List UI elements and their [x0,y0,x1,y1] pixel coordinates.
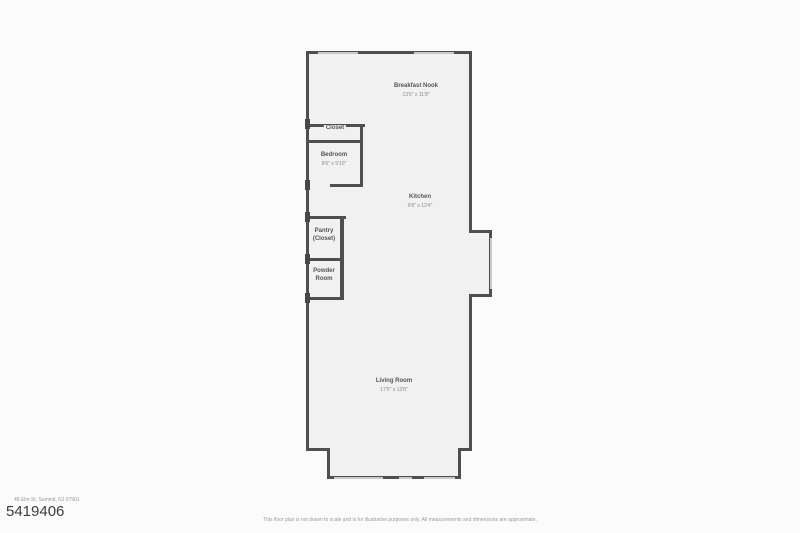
wall-closet-bottom [308,140,363,143]
label-pantry-line2: (Closet) [313,236,335,243]
label-breakfast-nook: Breakfast Nook [394,83,438,90]
dims-living-room: 17'6" x 13'8" [380,387,407,393]
floor-plan-page: Breakfast Nook 13'6" x 11'8" Closet Bedr… [0,0,800,533]
dims-kitchen: 9'8" x 13'4" [408,203,433,209]
label-closet: Closet [324,125,346,132]
window-bay [490,238,492,289]
label-powder-line1: Powder [313,268,335,275]
wall-left-step-v [327,448,330,479]
wall-bedroom-bottom [330,184,363,187]
wall-junction-nub [305,254,310,264]
wall-junction-nub [305,293,310,303]
wall-bedroom-right [360,124,363,187]
wall-junction-nub [305,180,310,190]
window-top-right [414,52,454,54]
wall-right-upper [469,51,472,233]
mls-number: 5419406 [6,503,64,520]
window-bottom-right [424,477,455,479]
floor-bottom-section [328,448,459,478]
dims-breakfast-nook: 13'6" x 11'8" [402,92,429,98]
wall-powder-bottom [308,297,344,300]
floor-bay-bump [470,231,491,297]
label-kitchen: Kitchen [409,194,431,201]
disclaimer-text: This floor plan is not drawn to scale an… [263,517,537,523]
label-bedroom: Bedroom [321,152,347,159]
wall-right-lower [469,295,472,451]
window-bottom-mid [399,477,412,479]
window-bottom-left [334,477,383,479]
wall-junction-nub [305,212,310,222]
label-pantry-line1: Pantry [315,228,334,235]
dims-bedroom: 8'6" x 9'10" [322,161,347,167]
wall-right-step-v [458,448,461,479]
window-top-left [318,52,358,54]
label-living-room: Living Room [376,378,412,385]
wall-junction-nub [305,119,310,129]
wall-bay-top [469,230,492,233]
wall-pantry-powder-divider [308,258,344,261]
wall-left [306,51,309,451]
label-powder-line2: Room [316,276,333,283]
